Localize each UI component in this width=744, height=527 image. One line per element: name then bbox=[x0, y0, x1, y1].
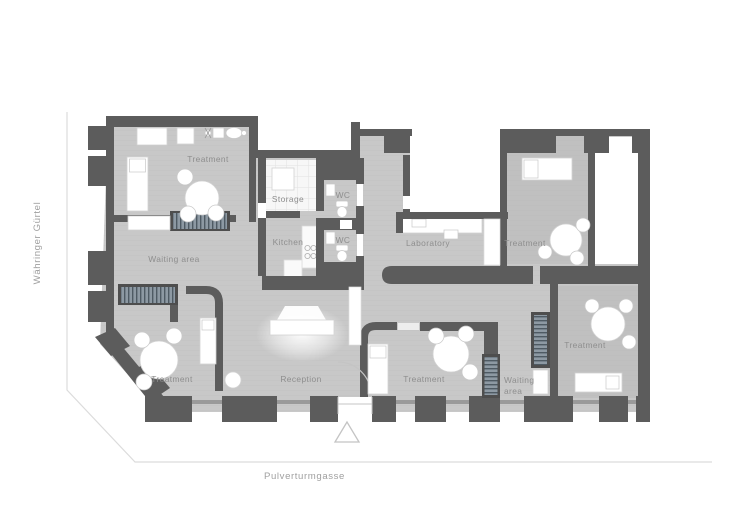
chair-icon bbox=[585, 299, 599, 313]
sink bbox=[326, 232, 335, 244]
chair-icon bbox=[462, 364, 478, 380]
chair-icon bbox=[428, 328, 444, 344]
door-wc-lower bbox=[357, 234, 363, 256]
cabinet bbox=[533, 370, 548, 394]
door-courtyard bbox=[403, 196, 410, 209]
adjacent-room bbox=[595, 137, 638, 264]
label-waiting-right-line1: Waiting bbox=[504, 375, 534, 385]
label-waiting-right-line2: area bbox=[504, 386, 522, 396]
label-kitchen: Kitchen bbox=[273, 237, 304, 247]
pillow bbox=[202, 320, 214, 330]
lamp-icon bbox=[277, 306, 326, 320]
pillow bbox=[370, 346, 386, 358]
floor-plan-drawing: Währinger Gürtel Pulverturmgasse bbox=[0, 0, 744, 527]
label-waiting-left: Waiting area bbox=[148, 254, 200, 264]
bench-treatment-bottom-center bbox=[482, 354, 500, 398]
chair-icon bbox=[619, 299, 633, 313]
chair-icon bbox=[180, 206, 196, 222]
door-treatment-center bbox=[398, 323, 419, 330]
door-wc-upper bbox=[357, 184, 363, 206]
pillow bbox=[524, 160, 538, 178]
street-label-bottom: Pulverturmgasse bbox=[264, 471, 345, 482]
label-wc-upper: WC bbox=[336, 190, 351, 200]
cabinet bbox=[137, 128, 167, 145]
street-label-left: Währinger Gürtel bbox=[32, 202, 43, 285]
courtyard bbox=[410, 130, 500, 212]
bench-waiting-left bbox=[118, 284, 178, 305]
label-treatment-top-left: Treatment bbox=[187, 154, 229, 164]
chair-icon bbox=[576, 218, 590, 232]
label-treatment-bottom-center: Treatment bbox=[403, 374, 445, 384]
label-wc-lower: WC bbox=[336, 235, 351, 245]
toilet-icon bbox=[336, 245, 348, 262]
chair-icon bbox=[166, 328, 182, 344]
chair-icon bbox=[177, 169, 193, 185]
chair-icon bbox=[570, 251, 584, 265]
stool-icon bbox=[225, 372, 241, 388]
closet-column bbox=[484, 219, 500, 265]
reception-desk bbox=[270, 320, 334, 335]
label-treatment-right: Treatment bbox=[504, 238, 546, 248]
cabinet bbox=[177, 128, 194, 144]
chair-icon bbox=[134, 332, 150, 348]
sink bbox=[326, 184, 335, 196]
storage-box bbox=[272, 168, 294, 190]
door-corridor bbox=[349, 287, 361, 345]
label-storage: Storage bbox=[272, 194, 304, 204]
entrance-door bbox=[338, 397, 372, 419]
chair-icon bbox=[208, 205, 224, 221]
label-laboratory: Laboratory bbox=[406, 238, 450, 248]
label-treatment-bottom-right: Treatment bbox=[564, 340, 606, 350]
cabinet bbox=[128, 216, 170, 230]
wall-niche bbox=[340, 220, 352, 229]
floor-plan-page: Währinger Gürtel Pulverturmgasse bbox=[0, 0, 744, 527]
chair-icon bbox=[622, 335, 636, 349]
door-storage bbox=[258, 203, 266, 218]
label-reception: Reception bbox=[280, 374, 321, 384]
label-treatment-bottom-left: Treatment bbox=[151, 374, 193, 384]
chair-icon bbox=[458, 326, 474, 342]
pillow bbox=[130, 159, 146, 172]
entrance-marker-icon bbox=[335, 422, 359, 442]
chair-icon bbox=[136, 374, 152, 390]
toilet-icon bbox=[336, 201, 348, 218]
desk-chair bbox=[606, 376, 619, 389]
